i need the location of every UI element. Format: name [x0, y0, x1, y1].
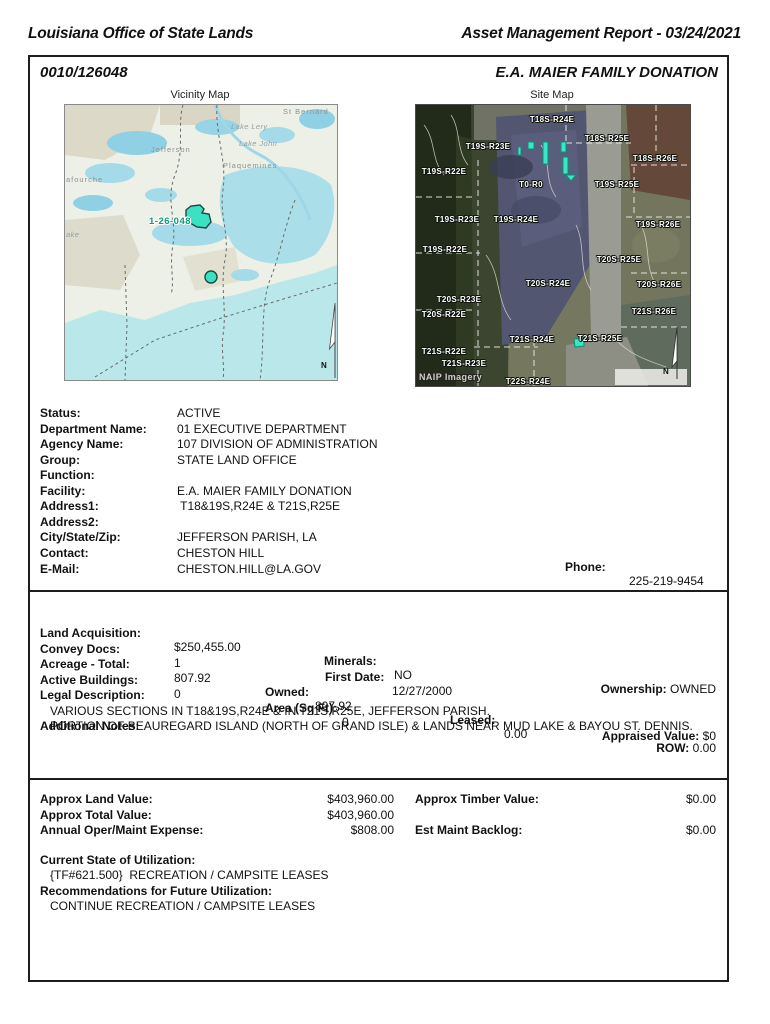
future-utilization-text: CONTINUE RECREATION / CAMPSITE LEASES	[50, 899, 315, 913]
township-label: T21S-R22E	[422, 347, 467, 356]
township-label: T18S-R25E	[585, 134, 630, 143]
vicinity-place-label: Lake John	[239, 139, 277, 148]
identity-value: CHESTON.HILL@LA.GOV	[177, 562, 321, 576]
valuation-value-2: $0.00	[686, 823, 716, 837]
identity-label: Address1:	[40, 499, 99, 513]
identity-label: E-Mail:	[40, 562, 79, 576]
section-divider	[30, 778, 727, 780]
legal-description-text-row: VARIOUS SECTIONS IN T18&19S,R24E & IN T2…	[30, 690, 727, 705]
valuation-row: Approx Land Value:$403,960.00Approx Timb…	[30, 792, 727, 807]
valuation-value-2: $0.00	[686, 792, 716, 806]
valuation-row: Annual Oper/Maint Expense:$808.00Est Mai…	[30, 823, 727, 838]
identity-label: Department Name:	[40, 422, 147, 436]
vicinity-place-label: Lake Lery	[231, 122, 268, 131]
vicinity-place-label: ake	[66, 230, 79, 239]
identity-row: Function:	[30, 468, 727, 483]
identity-label: Function:	[40, 468, 95, 482]
township-label: T20S-R25E	[597, 255, 642, 264]
valuation-label: Approx Land Value:	[40, 792, 153, 806]
row-item: ROW: 0.00	[656, 741, 716, 755]
identity-row: Status:ACTIVE	[30, 406, 727, 421]
identity-label: Status:	[40, 406, 81, 420]
vicinity-map-graphic	[65, 105, 337, 380]
valuation-label-2: Est Maint Backlog:	[415, 823, 522, 837]
valuation-value: $808.00	[180, 823, 394, 837]
north-arrow-letter: N	[321, 361, 327, 370]
section-divider	[30, 590, 727, 592]
asset-name: E.A. MAIER FAMILY DONATION	[495, 64, 718, 81]
township-label: T19S-R23E	[435, 215, 480, 224]
identity-label: Group:	[40, 453, 80, 467]
site-map: T18S-R24ET18S-R25ET18S-R26ET19S-R23ET19S…	[415, 104, 691, 387]
township-label: T18S-R26E	[633, 154, 678, 163]
vicinity-parcel-secondary	[205, 271, 217, 283]
identity-row: Agency Name:107 DIVISION OF ADMINISTRATI…	[30, 437, 727, 452]
phone-label: Phone:	[565, 560, 606, 574]
township-label: T21S-R23E	[442, 359, 487, 368]
identity-row: Address1: T18&19S,R24E & T21S,R25E	[30, 499, 727, 514]
valuation-label: Annual Oper/Maint Expense:	[40, 823, 203, 837]
identity-row: City/State/Zip:JEFFERSON PARISH, LA	[30, 530, 727, 545]
township-label: T19S-R22E	[423, 245, 468, 254]
vicinity-map-title: Vicinity Map	[64, 89, 336, 101]
township-label: T19S-R25E	[595, 180, 640, 189]
identity-row: Facility:E.A. MAIER FAMILY DONATION	[30, 484, 727, 499]
additional-notes-row: Additional Notes:	[30, 705, 727, 720]
identity-value: 107 DIVISION OF ADMINISTRATION	[177, 437, 377, 451]
township-label: T19S-R26E	[636, 220, 681, 229]
identity-label: Facility:	[40, 484, 85, 498]
vicinity-parcel-label: 1-26-048	[149, 216, 191, 227]
township-label: T20S-R23E	[437, 295, 482, 304]
identity-value: STATE LAND OFFICE	[177, 453, 297, 467]
identity-row: Group:STATE LAND OFFICE	[30, 453, 727, 468]
identity-value: ACTIVE	[177, 406, 220, 420]
identity-row: E-Mail:CHESTON.HILL@LA.GOV	[30, 562, 727, 577]
identity-value: 01 EXECUTIVE DEPARTMENT	[177, 422, 347, 436]
valuation-label: Approx Total Value:	[40, 808, 152, 822]
township-label: T21S-R25E	[578, 334, 623, 343]
township-label: T0-R0	[519, 180, 543, 189]
page-header-right: Asset Management Report - 03/24/2021	[461, 25, 741, 43]
identity-value: JEFFERSON PARISH, LA	[177, 530, 317, 544]
page-header-left: Louisiana Office of State Lands	[28, 25, 253, 43]
township-label: T21S-R26E	[632, 307, 677, 316]
current-utilization-row: Current State of Utilization:	[30, 839, 727, 854]
north-arrow-letter: N	[663, 367, 669, 376]
valuation-value: $403,960.00	[180, 808, 394, 822]
vicinity-map: St BernardLake LeryLake JohnJeffersonPla…	[64, 104, 338, 381]
additional-notes-text: PORTION OF BEAUREGARD ISLAND (NORTH OF G…	[50, 720, 710, 733]
vicinity-place-label: St Bernard	[283, 107, 329, 116]
current-utilization-text-row: {TF#621.500} RECREATION / CAMPSITE LEASE…	[30, 854, 727, 869]
township-label: T22S-R24E	[506, 377, 551, 386]
township-label: T21S-R24E	[510, 335, 555, 344]
future-utilization-text-row: CONTINUE RECREATION / CAMPSITE LEASES	[30, 885, 727, 900]
identity-label: Address2:	[40, 515, 99, 529]
vicinity-place-label: Plaquemines	[223, 161, 277, 170]
identity-label: Agency Name:	[40, 437, 123, 451]
acquisition-row: Land Acquisition: $250,455.00 Minerals: …	[30, 612, 727, 627]
asset-id: 0010/126048	[40, 64, 128, 81]
legal-description-row: Legal Description:	[30, 674, 727, 689]
report-box: 0010/126048 E.A. MAIER FAMILY DONATION V…	[28, 55, 729, 982]
site-map-credit: NAIP Imagery	[419, 372, 482, 382]
identity-row: Address2:	[30, 515, 727, 530]
vicinity-place-label: Jefferson	[151, 145, 191, 154]
township-label: T20S-R22E	[422, 310, 467, 319]
phone-row: Phone: 225-219-9454	[30, 546, 727, 561]
township-label: T20S-R26E	[637, 280, 682, 289]
identity-value: T18&19S,R24E & T21S,R25E	[177, 499, 340, 513]
phone-value: 225-219-9454	[629, 574, 704, 588]
township-label: T20S-R24E	[526, 279, 571, 288]
valuation-label-2: Approx Timber Value:	[415, 792, 539, 806]
identity-label: City/State/Zip:	[40, 530, 121, 544]
valuation-row: Approx Total Value:$403,960.00	[30, 808, 727, 823]
future-utilization-row: Recommendations for Future Utilization:	[30, 870, 727, 885]
acquisition-row: Convey Docs: 1 First Date: 12/27/2000	[30, 628, 727, 643]
row-value: 0.00	[693, 741, 716, 755]
township-label: T19S-R23E	[466, 142, 511, 151]
township-label: T19S-R24E	[494, 215, 539, 224]
row-label: ROW:	[656, 741, 689, 755]
vicinity-place-label: afourche	[66, 175, 103, 184]
site-map-title: Site Map	[415, 89, 689, 101]
identity-row: Department Name:01 EXECUTIVE DEPARTMENT	[30, 422, 727, 437]
valuation-value: $403,960.00	[180, 792, 394, 806]
acquisition-row: Acreage - Total: 807.92 Owned: 807.92 Le…	[30, 643, 727, 658]
identity-value: E.A. MAIER FAMILY DONATION	[177, 484, 352, 498]
township-label: T18S-R24E	[530, 115, 575, 124]
acquisition-row: Active Buildings: 0 Area (Sq Ft): 0 Appr…	[30, 659, 727, 674]
township-label: T19S-R22E	[422, 167, 467, 176]
